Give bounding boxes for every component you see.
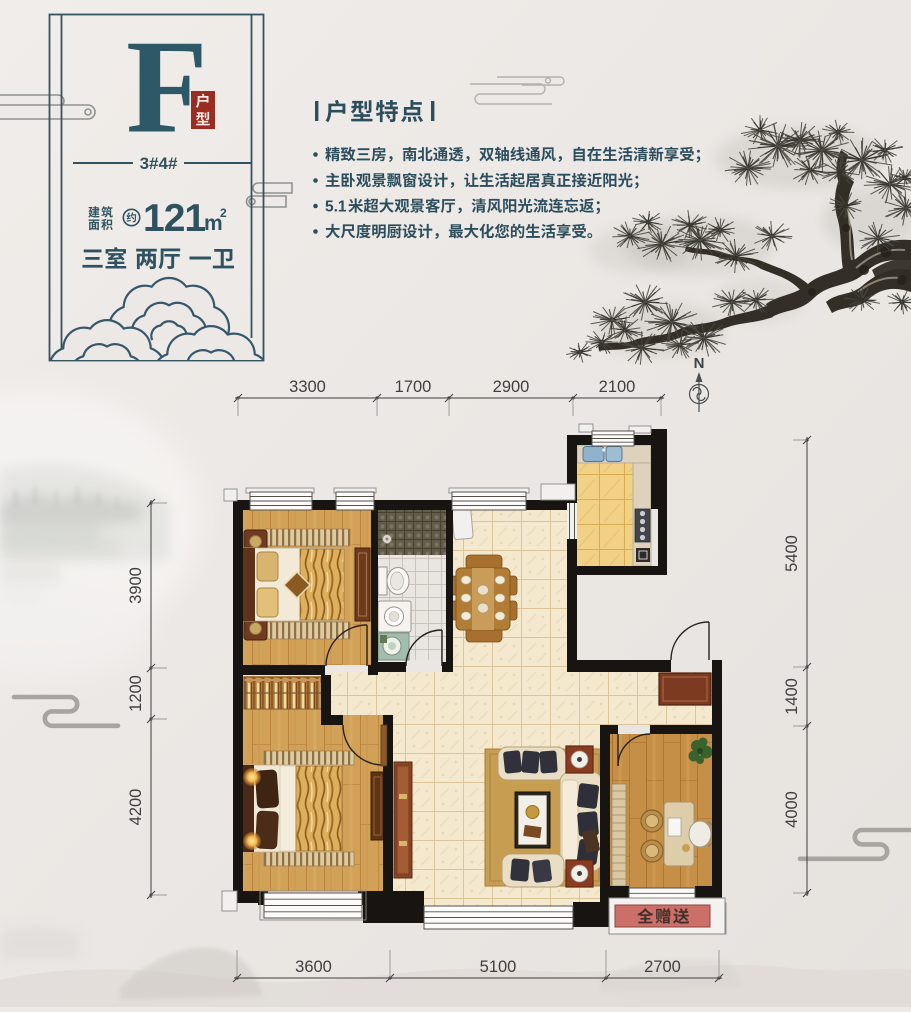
svg-text:1400: 1400 bbox=[783, 678, 801, 715]
svg-text:5100: 5100 bbox=[480, 958, 517, 976]
svg-text:4000: 4000 bbox=[783, 791, 801, 828]
svg-text:5400: 5400 bbox=[783, 535, 801, 572]
svg-text:1700: 1700 bbox=[395, 378, 432, 396]
svg-text:N: N bbox=[694, 355, 705, 372]
svg-text:F: F bbox=[126, 13, 208, 161]
svg-text:2100: 2100 bbox=[599, 378, 636, 396]
svg-text:3600: 3600 bbox=[295, 958, 332, 976]
svg-text:3300: 3300 bbox=[289, 378, 326, 396]
svg-text:3900: 3900 bbox=[127, 567, 145, 604]
svg-text:2900: 2900 bbox=[493, 378, 530, 396]
svg-text:2: 2 bbox=[220, 206, 227, 220]
svg-text:1200: 1200 bbox=[127, 675, 145, 712]
svg-text:5.1: 5.1 bbox=[325, 199, 347, 216]
svg-text:4200: 4200 bbox=[127, 789, 145, 826]
svg-text:3#4#: 3#4# bbox=[140, 154, 178, 173]
svg-text:121: 121 bbox=[143, 197, 205, 240]
svg-text:2700: 2700 bbox=[644, 958, 681, 976]
